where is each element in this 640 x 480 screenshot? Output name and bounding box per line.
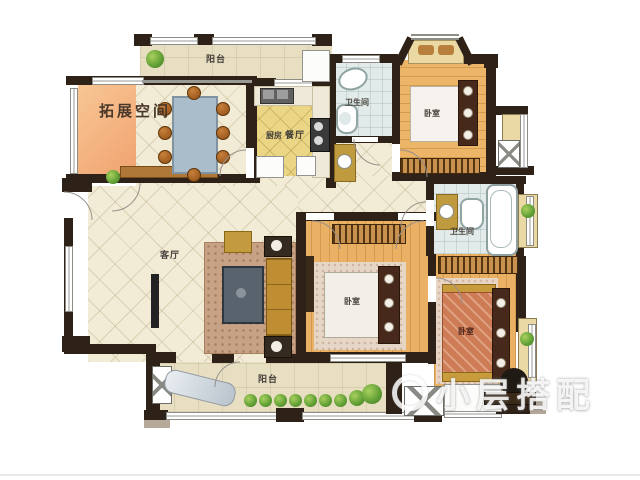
room-label-kitchen: 厨房 (266, 130, 282, 141)
room-label-balcony-top: 阳台 (206, 52, 226, 65)
room-label-extension: 拓展空间 (99, 100, 147, 124)
watermark-logo-icon (392, 375, 428, 411)
watermark: 小层搭配 (392, 368, 596, 417)
floorplan-canvas: 拓展空间 阳台 餐厅 厨房 卫生间 卧室 卫生间 客厅 卧室 卧室 阳台 小层搭… (0, 0, 640, 480)
image-edge-line (0, 474, 640, 476)
room-label-bedroom1: 卧室 (424, 108, 440, 119)
room-label-bathroom-top: 卫生间 (345, 97, 369, 108)
room-label-dining: 餐厅 (285, 128, 305, 141)
room-label-balcony-bottom: 阳台 (258, 372, 278, 385)
room-label-living: 客厅 (160, 248, 180, 261)
watermark-text: 小层搭配 (436, 368, 596, 417)
room-label-bedroom3: 卧室 (458, 326, 474, 337)
room-label-bedroom2: 卧室 (344, 296, 360, 307)
room-label-bathroom-right: 卫生间 (450, 226, 474, 237)
